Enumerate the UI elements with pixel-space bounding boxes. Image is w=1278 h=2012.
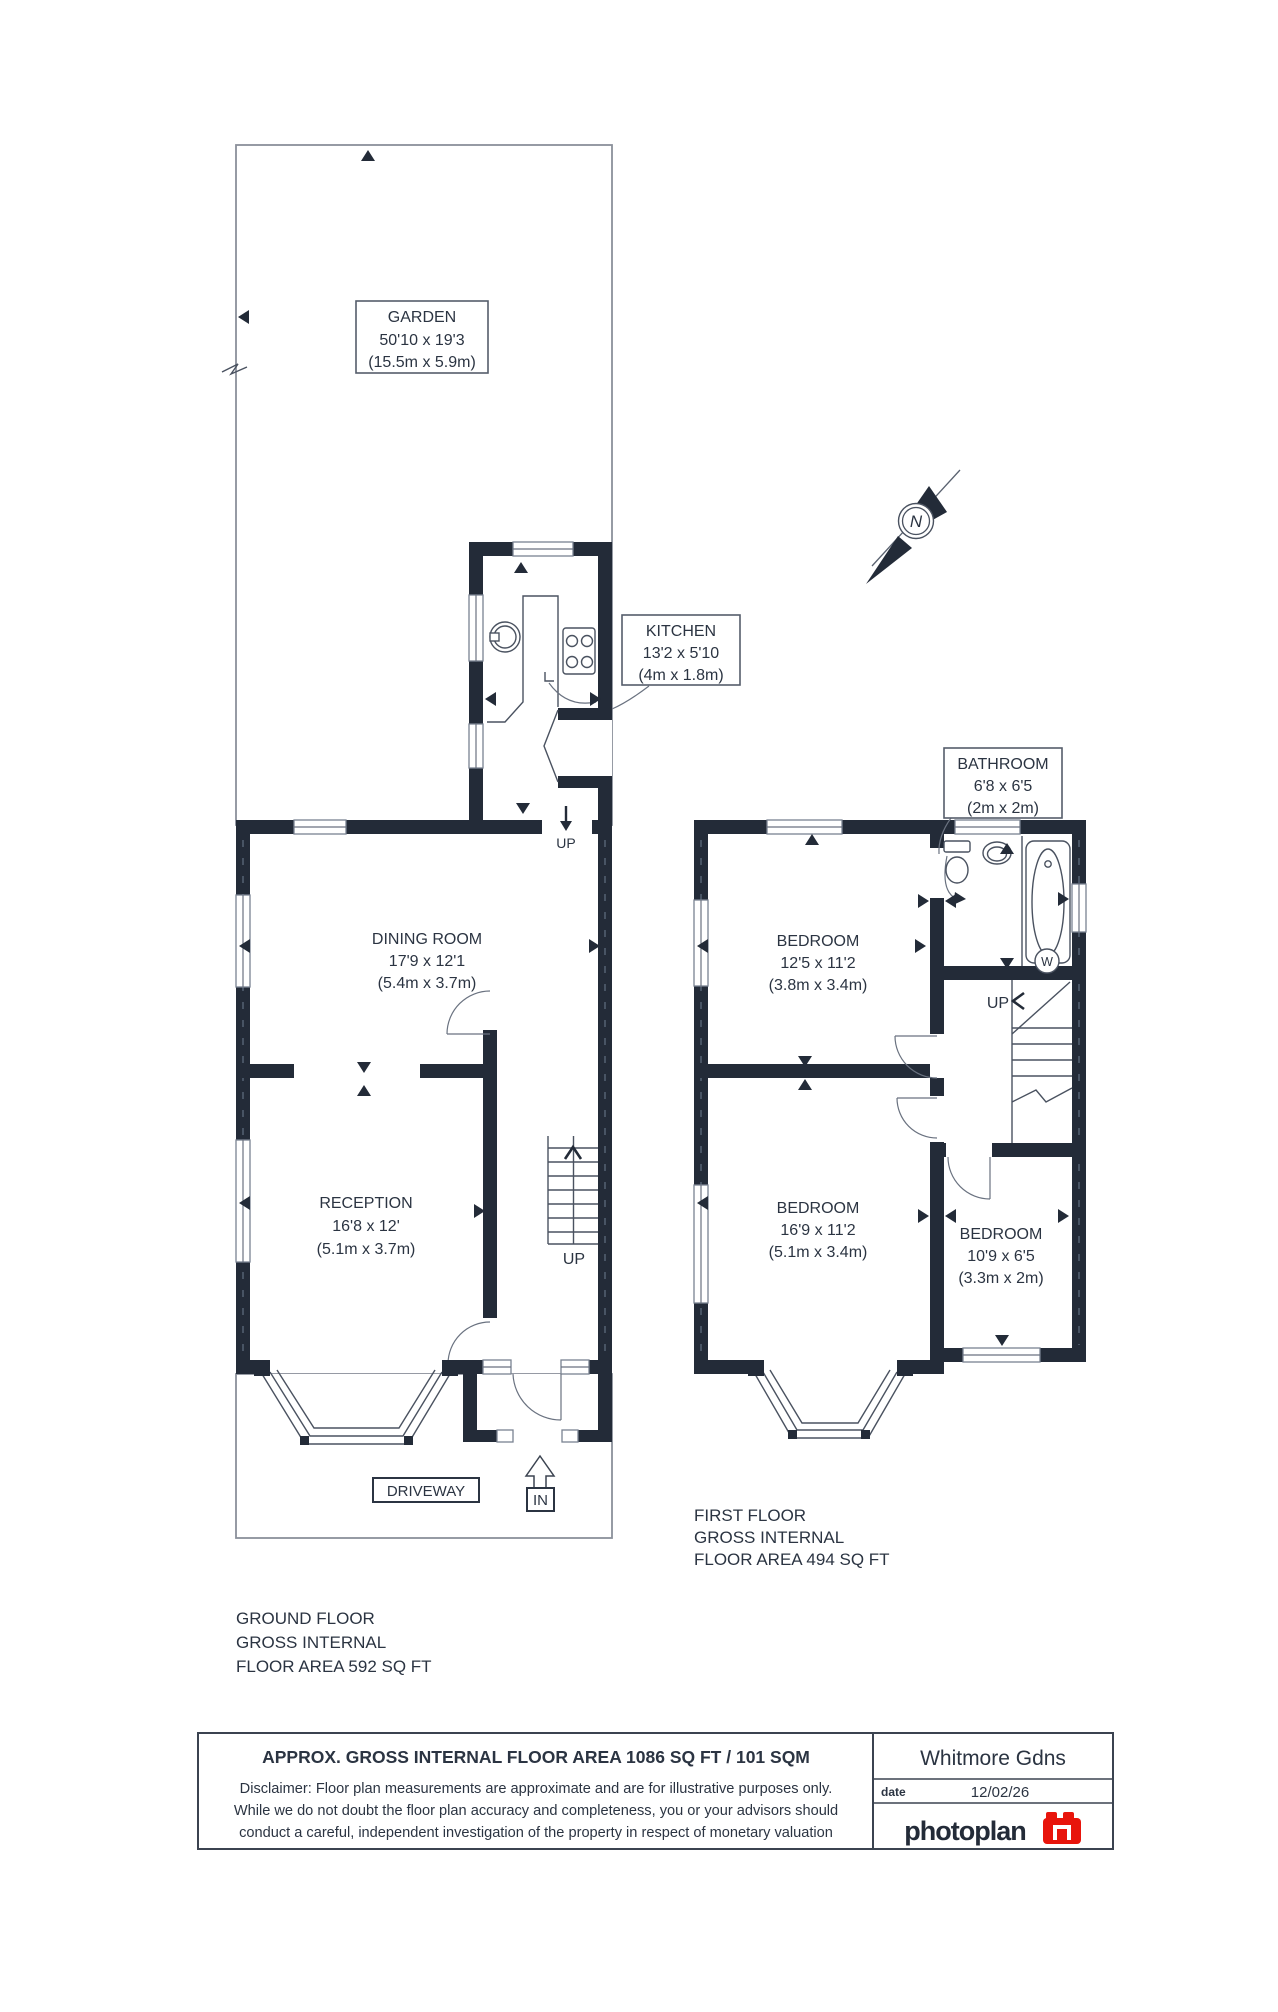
svg-text:(4m x 1.8m): (4m x 1.8m) [638, 667, 723, 684]
svg-text:(5.4m x 3.7m): (5.4m x 3.7m) [378, 975, 477, 992]
date-value: 12/02/26 [971, 1784, 1029, 1801]
svg-text:DINING ROOM: DINING ROOM [372, 931, 482, 948]
title-block: APPROX. GROSS INTERNAL FLOOR AREA 1086 S… [198, 1733, 1113, 1849]
svg-text:12'5 x 11'2: 12'5 x 11'2 [780, 955, 855, 972]
approx-area-title: APPROX. GROSS INTERNAL FLOOR AREA 1086 S… [262, 1747, 810, 1767]
disclaimer-line: conduct a careful, independent investiga… [239, 1825, 833, 1841]
page-background [0, 0, 1278, 2012]
bedroom1-label: BEDROOM 12'5 x 11'2 (3.8m x 3.4m) [769, 933, 868, 994]
svg-text:BEDROOM: BEDROOM [960, 1226, 1043, 1243]
svg-text:50'10 x 19'3: 50'10 x 19'3 [379, 332, 464, 349]
svg-text:BEDROOM: BEDROOM [777, 1200, 860, 1217]
kitchen-room [469, 542, 612, 834]
svg-text:FLOOR AREA 494 SQ FT: FLOOR AREA 494 SQ FT [694, 1550, 890, 1569]
svg-text:DRIVEWAY: DRIVEWAY [387, 1483, 465, 1500]
svg-text:6'8 x 6'5: 6'8 x 6'5 [974, 778, 1033, 795]
first-floor-plan: W UP [694, 820, 1086, 1439]
logo-wordmark: photoplan [904, 1816, 1025, 1846]
driveway-label: DRIVEWAY [373, 1478, 479, 1502]
svg-text:13'2 x 5'10: 13'2 x 5'10 [643, 645, 719, 662]
property-name: Whitmore Gdns [920, 1747, 1066, 1770]
svg-text:FIRST FLOOR: FIRST FLOOR [694, 1506, 806, 1525]
svg-text:W: W [1041, 955, 1053, 969]
bedroom3-label: BEDROOM 10'9 x 6'5 (3.3m x 2m) [958, 1226, 1043, 1287]
svg-text:(15.5m x 5.9m): (15.5m x 5.9m) [368, 354, 476, 371]
garden-label: GARDEN 50'10 x 19'3 (15.5m x 5.9m) [356, 301, 488, 373]
kitchen-sink [490, 622, 520, 652]
date-label: date [881, 1785, 906, 1799]
disclaimer-line: While we do not doubt the floor plan acc… [234, 1803, 838, 1819]
svg-text:GARDEN: GARDEN [388, 309, 456, 326]
water-symbol: W [1035, 949, 1059, 973]
svg-text:RECEPTION: RECEPTION [319, 1195, 412, 1212]
north-label: N [910, 512, 923, 531]
svg-text:(5.1m x 3.4m): (5.1m x 3.4m) [769, 1244, 868, 1261]
svg-text:(5.1m x 3.7m): (5.1m x 3.7m) [317, 1241, 416, 1258]
svg-text:IN: IN [533, 1492, 548, 1509]
floor-plan-drawing: UP UP [0, 0, 1278, 2012]
svg-text:BEDROOM: BEDROOM [777, 933, 860, 950]
up-label: UP [563, 1251, 585, 1268]
svg-text:GROSS INTERNAL: GROSS INTERNAL [236, 1633, 386, 1652]
svg-text:GROUND FLOOR: GROUND FLOOR [236, 1609, 375, 1628]
toilet [944, 841, 970, 883]
svg-text:10'9 x 6'5: 10'9 x 6'5 [967, 1248, 1035, 1265]
svg-text:BATHROOM: BATHROOM [957, 756, 1048, 773]
svg-text:16'8 x 12': 16'8 x 12' [332, 1218, 400, 1235]
svg-text:GROSS INTERNAL: GROSS INTERNAL [694, 1528, 844, 1547]
photoplan-logo: photoplan [904, 1812, 1081, 1846]
svg-text:(3.8m x 3.4m): (3.8m x 3.4m) [769, 977, 868, 994]
svg-text:17'9 x 12'1: 17'9 x 12'1 [389, 953, 465, 970]
svg-text:(2m x 2m): (2m x 2m) [967, 800, 1039, 817]
svg-text:FLOOR AREA 592 SQ FT: FLOOR AREA 592 SQ FT [236, 1657, 432, 1676]
up-label: UP [556, 835, 575, 851]
disclaimer-line: Disclaimer: Floor plan measurements are … [240, 1781, 833, 1797]
up-label: UP [987, 995, 1009, 1012]
kitchen-hob [563, 628, 595, 674]
bedroom2-label: BEDROOM 16'9 x 11'2 (5.1m x 3.4m) [769, 1200, 868, 1261]
svg-text:16'9 x 11'2: 16'9 x 11'2 [780, 1222, 855, 1239]
svg-text:(3.3m x 2m): (3.3m x 2m) [958, 1270, 1043, 1287]
floor-plan-page: UP UP [0, 0, 1278, 2012]
svg-text:KITCHEN: KITCHEN [646, 623, 716, 640]
